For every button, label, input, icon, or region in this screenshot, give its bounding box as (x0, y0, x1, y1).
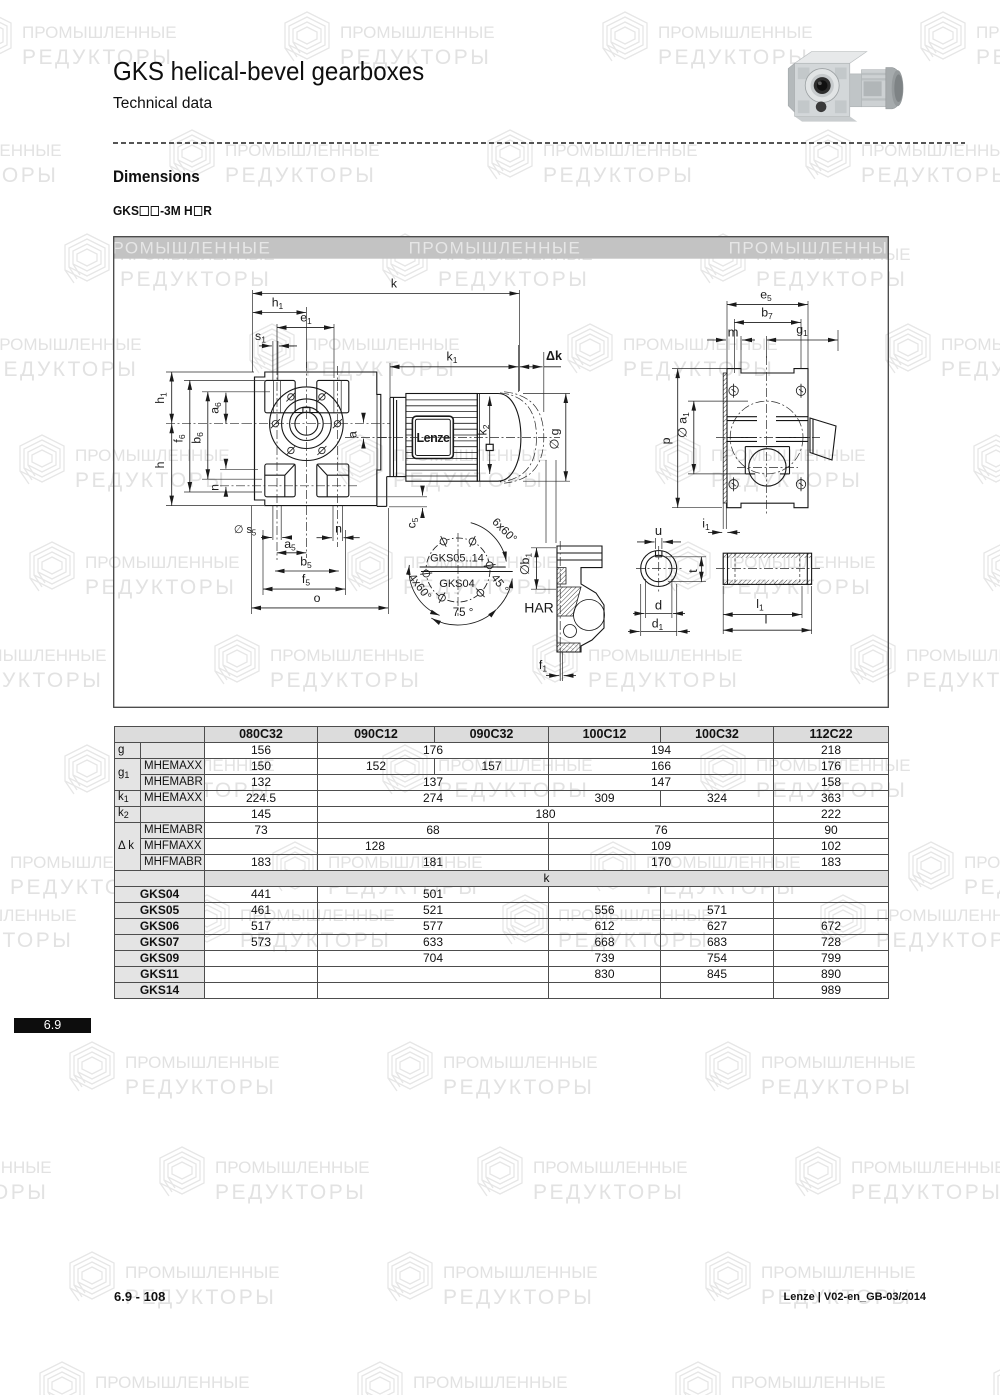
svg-text:GKS05..14: GKS05..14 (430, 553, 484, 565)
svg-text:n: n (207, 484, 221, 491)
svg-text:i1: i1 (702, 517, 710, 533)
svg-text:p: p (659, 437, 673, 444)
svg-text:u: u (655, 523, 662, 538)
svg-text:Lenze: Lenze (417, 431, 450, 445)
svg-text:∅b1: ∅b1 (518, 553, 534, 576)
svg-text:n: n (335, 522, 342, 536)
svg-text:b5: b5 (300, 555, 312, 571)
svg-text:f5: f5 (302, 572, 310, 588)
svg-text:75 °: 75 ° (453, 607, 474, 619)
svg-text:l: l (765, 613, 768, 627)
svg-text:6x60°: 6x60° (489, 516, 518, 545)
svg-text:d1: d1 (652, 617, 664, 633)
svg-text:∅ s: ∅ s (234, 524, 253, 536)
svg-text:k1: k1 (447, 349, 458, 365)
svg-text:HAR: HAR (524, 600, 554, 616)
svg-text:4x60°: 4x60° (406, 572, 433, 603)
svg-text:Δk: Δk (546, 349, 563, 363)
svg-text:ПРОМЫШЛЕННЫЕ: ПРОМЫШЛЕННЫЕ (409, 239, 582, 258)
svg-text:l1: l1 (756, 597, 764, 613)
svg-text:ПРОМЫШЛЕННЫЕ: ПРОМЫШЛЕННЫЕ (729, 239, 889, 258)
svg-text:h: h (153, 461, 167, 468)
svg-text:b6: b6 (189, 432, 205, 444)
svg-text:a: a (346, 431, 360, 438)
svg-text:∅ g: ∅ g (547, 428, 561, 449)
svg-text:b7: b7 (761, 305, 773, 321)
svg-text:m: m (728, 324, 739, 339)
svg-text:a5: a5 (284, 537, 296, 553)
svg-text:t: t (686, 569, 700, 573)
svg-text:c5: c5 (405, 517, 421, 528)
svg-text:ПРОМЫШЛЕННЫЕ: ПРОМЫШЛЕННЫЕ (113, 239, 271, 258)
svg-text:h1: h1 (153, 392, 169, 404)
svg-text:g1: g1 (796, 322, 808, 338)
svg-text:s1: s1 (255, 329, 266, 345)
svg-text:5: 5 (252, 529, 257, 538)
svg-text:f6: f6 (171, 434, 187, 442)
svg-text:a6: a6 (207, 402, 223, 414)
svg-text:f1: f1 (539, 658, 547, 674)
svg-text:45 °: 45 ° (488, 572, 510, 596)
svg-text:e5: e5 (760, 288, 772, 304)
svg-text:d: d (655, 598, 662, 613)
svg-text:k: k (391, 277, 398, 291)
svg-text:GKS04: GKS04 (439, 578, 474, 590)
svg-text:e1: e1 (300, 311, 312, 327)
svg-text:o: o (314, 591, 321, 605)
svg-text:h1: h1 (272, 296, 284, 312)
